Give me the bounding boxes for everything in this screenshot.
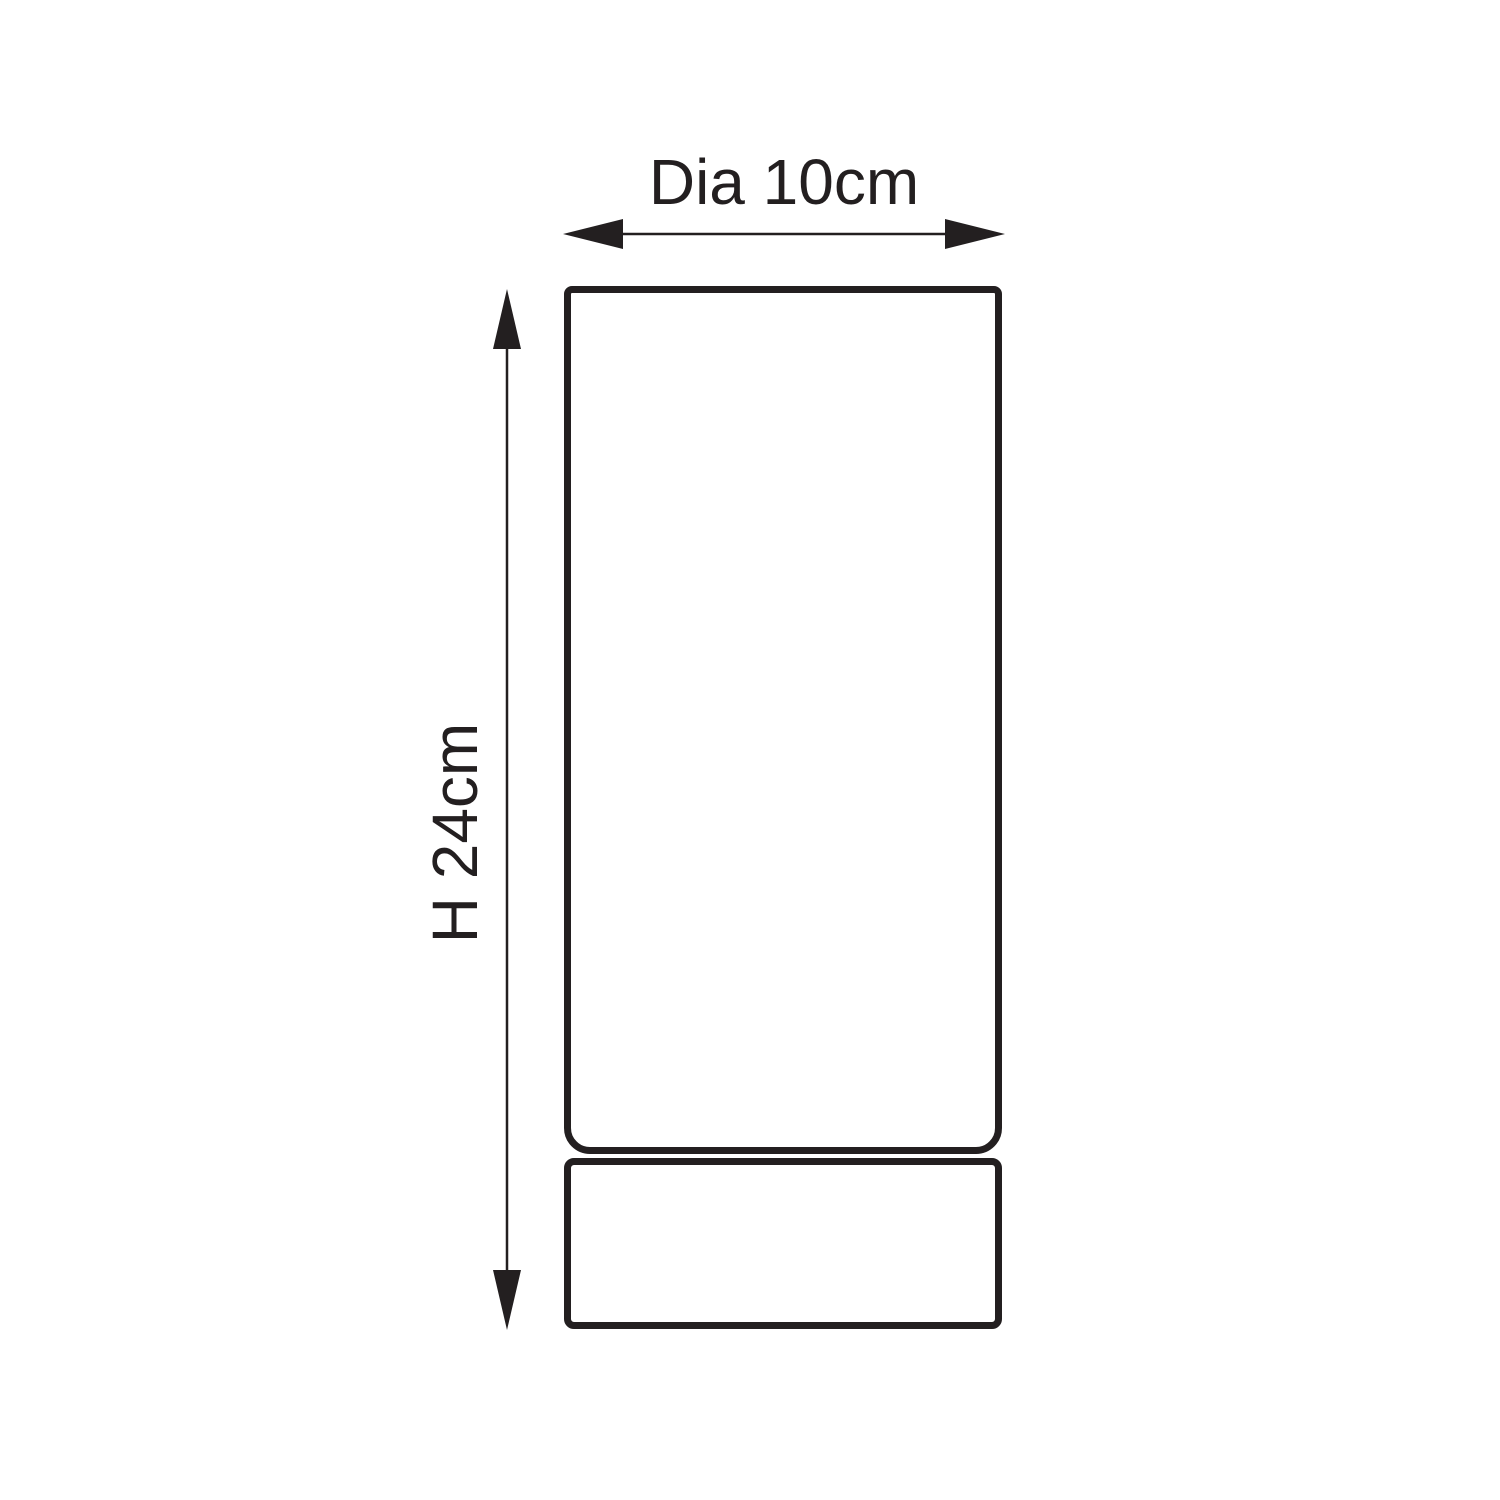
vertical-dimension-arrow bbox=[493, 289, 521, 1330]
dimension-drawing: Dia 10cm H 24cm bbox=[0, 0, 1500, 1500]
dimension-lines bbox=[0, 0, 1500, 1500]
horizontal-dimension-arrow bbox=[563, 219, 1005, 249]
diameter-dimension-label: Dia 10cm bbox=[563, 150, 1005, 214]
height-dimension-label: H 24cm bbox=[423, 723, 487, 944]
